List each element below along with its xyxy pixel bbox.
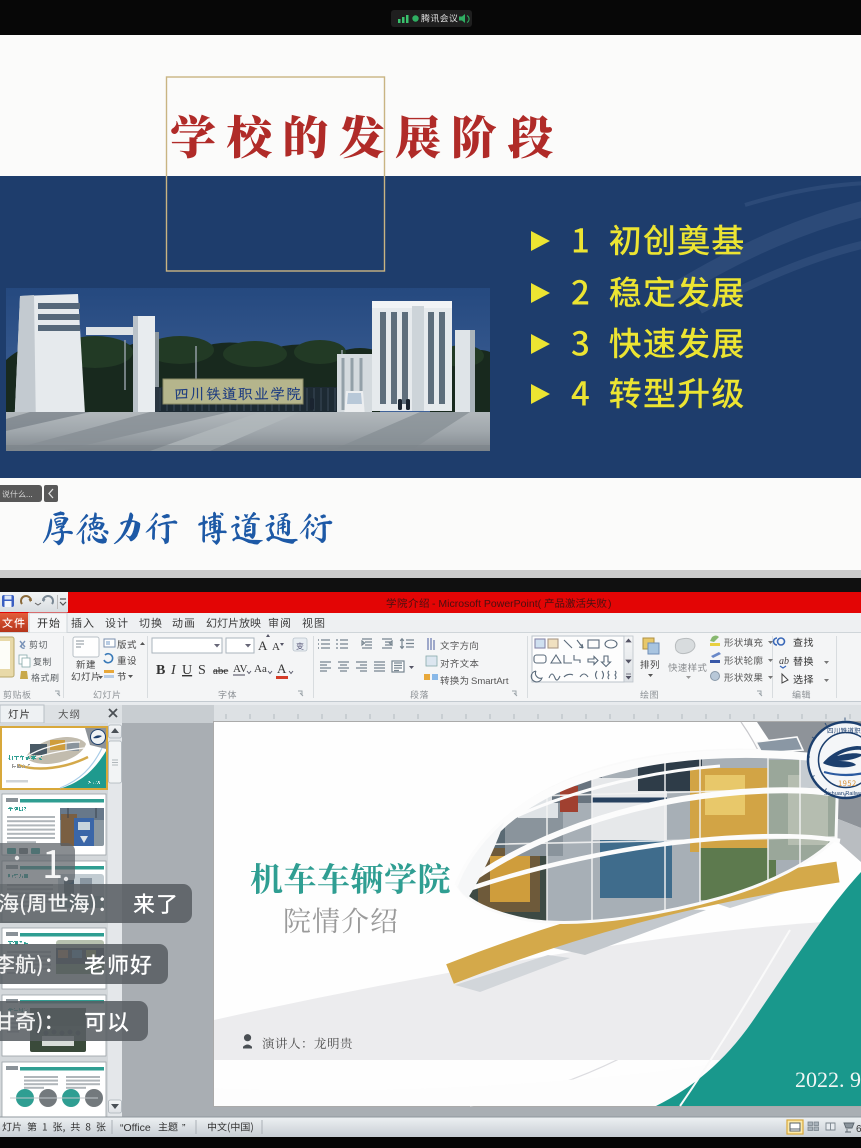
svg-text:6: 6	[856, 1124, 861, 1135]
svg-text:”: ”	[182, 1122, 186, 1134]
svg-text:- Microsoft PowerPoint(: - Microsoft PowerPoint(	[432, 598, 542, 610]
svg-text:SmartArt: SmartArt	[471, 676, 509, 687]
svg-text:AVAaA: AVAaA	[233, 661, 287, 676]
svg-text:“Office: “Office	[120, 1122, 151, 1134]
svg-text:ab: ab	[779, 656, 789, 667]
svg-text:): )	[608, 598, 612, 610]
svg-text:Sichuan Railway C: Sichuan Railway C	[824, 791, 861, 797]
svg-text:2022. 9: 2022. 9	[795, 1067, 861, 1092]
